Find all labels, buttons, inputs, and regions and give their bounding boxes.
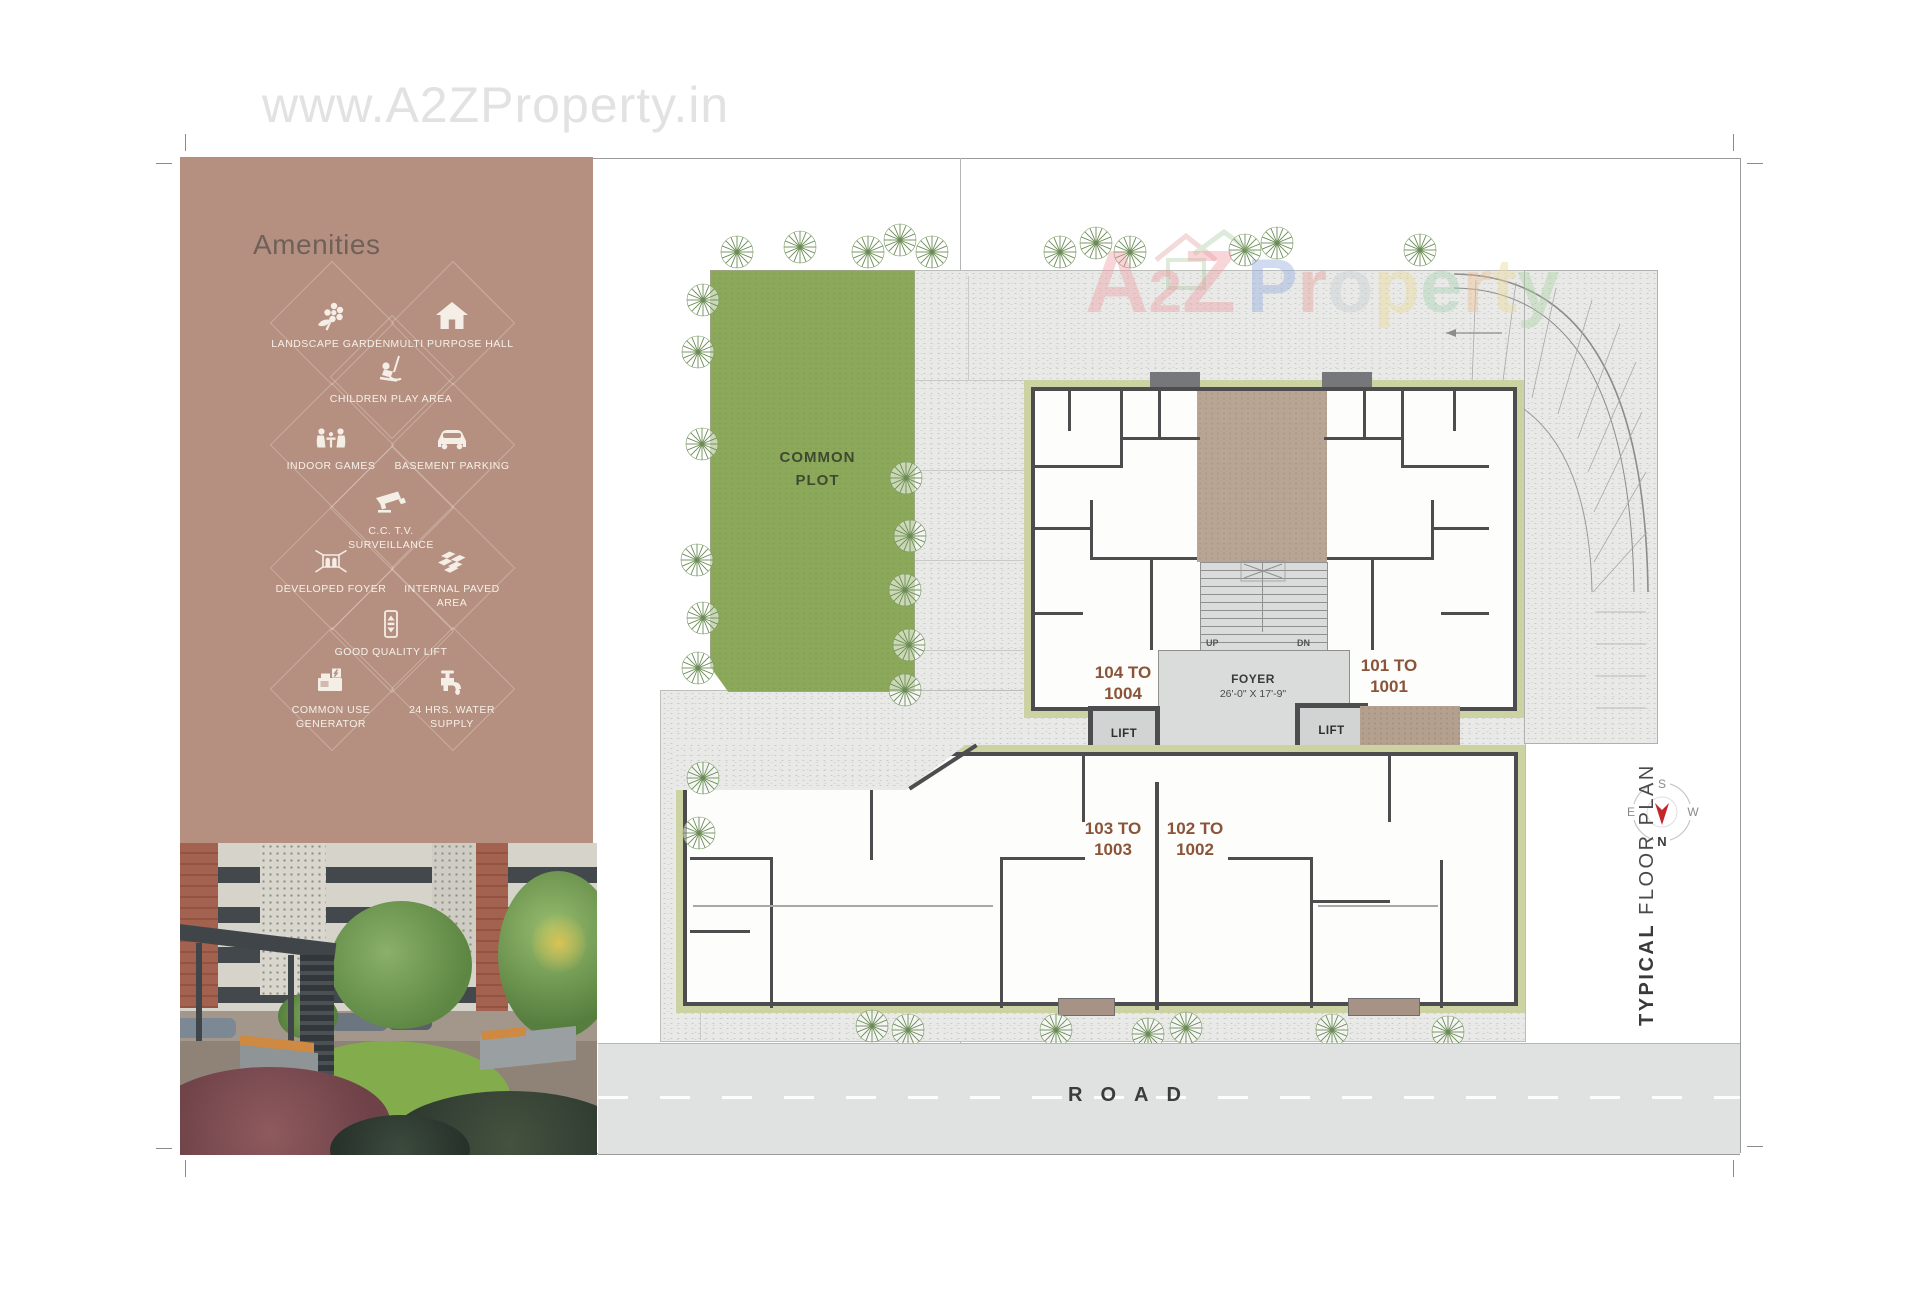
unit-label-101: 101 TO 1001 [1334,655,1444,698]
building-photo [180,843,597,1155]
wall-segment [1158,391,1161,437]
wall-segment [1327,557,1431,560]
amenity-label: 24 HRS. WATER SUPPLY [390,704,514,731]
unit-range: 104 TO [1095,663,1151,682]
crop-mark [1733,1160,1734,1177]
building-lower-interior [683,752,1518,1006]
central-courtyard [1197,391,1327,562]
wall-segment [1453,391,1456,431]
unit-range: 1001 [1370,677,1408,696]
crop-mark [185,1160,186,1177]
crop-mark [1747,163,1763,164]
amenity-label: DEVELOPED FOYER [269,583,393,597]
wall-segment [1440,860,1443,1008]
amenity-label: INDOOR GAMES [269,460,393,474]
stair-landing-x [1240,560,1286,582]
tree-icon [883,668,927,712]
wall-segment [770,860,773,1008]
tree-icon [910,230,954,274]
wall-segment [1310,857,1313,1008]
tree-icon [676,330,720,374]
road-label: ROAD [1068,1084,1199,1107]
tree-icon [681,278,725,322]
balcony-rail [1318,905,1438,907]
unit-range: 1003 [1094,840,1132,859]
tree-icon [778,225,822,269]
crop-mark [1747,1146,1763,1147]
wall-segment [1082,752,1085,822]
crop-mark [156,1148,172,1149]
brand-letter: A [1085,232,1149,331]
caption-bold: TYPICAL [1636,923,1658,1026]
amenity-multi-purpose-hall: MULTI PURPOSE HALL [390,298,514,352]
wall-segment [1371,560,1374,650]
parking-line [913,560,1025,561]
photo-pergola-post [288,955,294,1047]
lift-label: LIFT [1111,728,1137,740]
amenity-developed-foyer: DEVELOPED FOYER [269,543,393,597]
amenities-heading: Amenities [253,229,380,261]
amenity-indoor-games: INDOOR GAMES [269,420,393,474]
wall-segment [690,930,750,933]
tree-icon [681,756,725,800]
wall-segment [870,790,873,860]
tree-icon [883,568,927,612]
photo-tree [330,901,472,1029]
unit-range: 103 TO [1085,819,1141,838]
tap-icon [434,664,470,700]
tree-icon [884,456,928,500]
amenity-internal-paved-area: INTERNAL PAVED AREA [390,543,514,610]
wall-segment [690,857,773,860]
unit-range: 102 TO [1167,819,1223,838]
unit-label-104: 104 TO 1004 [1068,662,1178,705]
tree-icon [676,646,720,690]
entry-step [1348,998,1420,1016]
svg-text:W: W [1687,805,1699,819]
wall-segment [1324,437,1404,440]
house-icon [434,298,470,334]
wall-segment [1120,437,1200,440]
tree-icon [675,538,719,582]
tree-icon [680,422,724,466]
unit-range: 101 TO [1361,656,1417,675]
swing-icon [373,353,409,389]
parking-line [913,470,1025,471]
crop-mark [156,163,172,164]
wall-segment [1035,612,1083,615]
unit-range: 1002 [1176,840,1214,859]
wall-segment [1401,465,1489,468]
brand-letter: t [1492,244,1517,329]
brand-letter: o [1327,244,1373,329]
car-icon [434,420,470,456]
wall-segment [1150,560,1153,650]
amenity-landscape-garden: LANDSCAPE GARDEN [269,298,393,352]
plan-caption: TYPICAL FLOOR PLAN [1636,846,1659,1026]
crop-mark [1733,134,1734,151]
svg-text:E: E [1627,805,1635,819]
road-band: ROAD [598,1043,1740,1155]
unit-label-102: 102 TO 1002 [1145,818,1245,861]
amenity-24hrs-water-supply: 24 HRS. WATER SUPPLY [390,664,514,731]
wall-segment [1093,557,1197,560]
website-watermark: www.A2ZProperty.in [262,76,729,134]
tree-icon [888,514,932,558]
generator-icon [313,664,349,700]
wall-segment [1431,500,1434,560]
tree-icon [887,623,931,667]
foyer-label: FOYER 26'-0" X 17'-9" [1193,672,1313,700]
brand-letter: e [1420,244,1462,329]
lift-icon [373,606,409,642]
compass: S N E W [1620,770,1704,854]
wall-segment [1363,391,1366,437]
brand-letter: y [1517,244,1559,329]
wall-segment [1441,612,1489,615]
brand-watermark: A2Z Property [1085,238,1559,326]
amenity-common-use-generator: COMMON USE GENERATOR [269,664,393,731]
amenity-label: GOOD QUALITY LIFT [329,646,453,660]
amenity-label: CHILDREN PLAY AREA [329,393,453,407]
amenity-children-play-area: CHILDREN PLAY AREA [329,353,453,407]
lift-label: LIFT [1318,725,1344,737]
tree-icon [715,230,759,274]
page-border-right [1740,158,1741,1153]
photo-car [180,1018,236,1038]
brand-letter: Z [1182,232,1236,331]
balcony-ledge [1322,372,1372,387]
amenity-good-quality-lift: GOOD QUALITY LIFT [329,606,453,660]
brand-word: Property [1247,239,1560,330]
brand-letter: r [1298,244,1328,329]
wall-segment [1401,391,1404,467]
brochure-page: www.A2ZProperty.in Amenities LANDSCAPE G… [0,0,1920,1311]
flower-icon [313,298,349,334]
svg-text:S: S [1658,777,1666,791]
brand-letter: P [1247,244,1298,329]
wall-segment [1155,782,1159,1010]
crop-mark [185,134,186,151]
amenity-basement-parking: BASEMENT PARKING [390,420,514,474]
amenity-label: COMMON USE GENERATOR [269,704,393,731]
wall-segment [1310,900,1390,903]
tree-icon [681,596,725,640]
wall-segment [1068,391,1071,431]
brand-letter: p [1374,244,1420,329]
stairs-up-label: UP [1206,638,1219,648]
foyer-icon [313,543,349,579]
wall-segment [1388,752,1391,822]
brand-letter: r [1462,244,1492,329]
parking-line [968,276,969,380]
wall-segment [1000,860,1003,1008]
photo-pergola-post [196,943,202,1041]
tiles-icon [434,543,470,579]
amenity-label: LANDSCAPE GARDEN [269,338,393,352]
parking-line [913,380,1025,381]
wall-segment [1090,500,1093,560]
amenity-label: MULTI PURPOSE HALL [390,338,514,352]
photo-tree-yellow [532,913,586,973]
common-plot-label: COMMON PLOT [775,447,860,492]
cctv-icon [373,485,409,521]
players-icon [313,420,349,456]
balcony-rail [693,905,993,907]
unit-range: 1004 [1104,684,1142,703]
caption-normal: FLOOR PLAN [1636,763,1658,923]
amenities-panel: Amenities LANDSCAPE GARDEN MULTI PURPOSE… [180,157,593,843]
foyer-dimensions: 26'-0" X 17'-9" [1193,688,1313,700]
wall-segment [1035,527,1093,530]
wall-segment [1120,391,1123,467]
balcony-ledge [1150,372,1200,387]
amenity-label: BASEMENT PARKING [390,460,514,474]
stairs-dn-label: DN [1297,638,1310,648]
wall-segment [1035,465,1123,468]
brand-letter: 2 [1149,258,1182,325]
tree-icon [677,811,721,855]
wall-segment [1431,527,1489,530]
